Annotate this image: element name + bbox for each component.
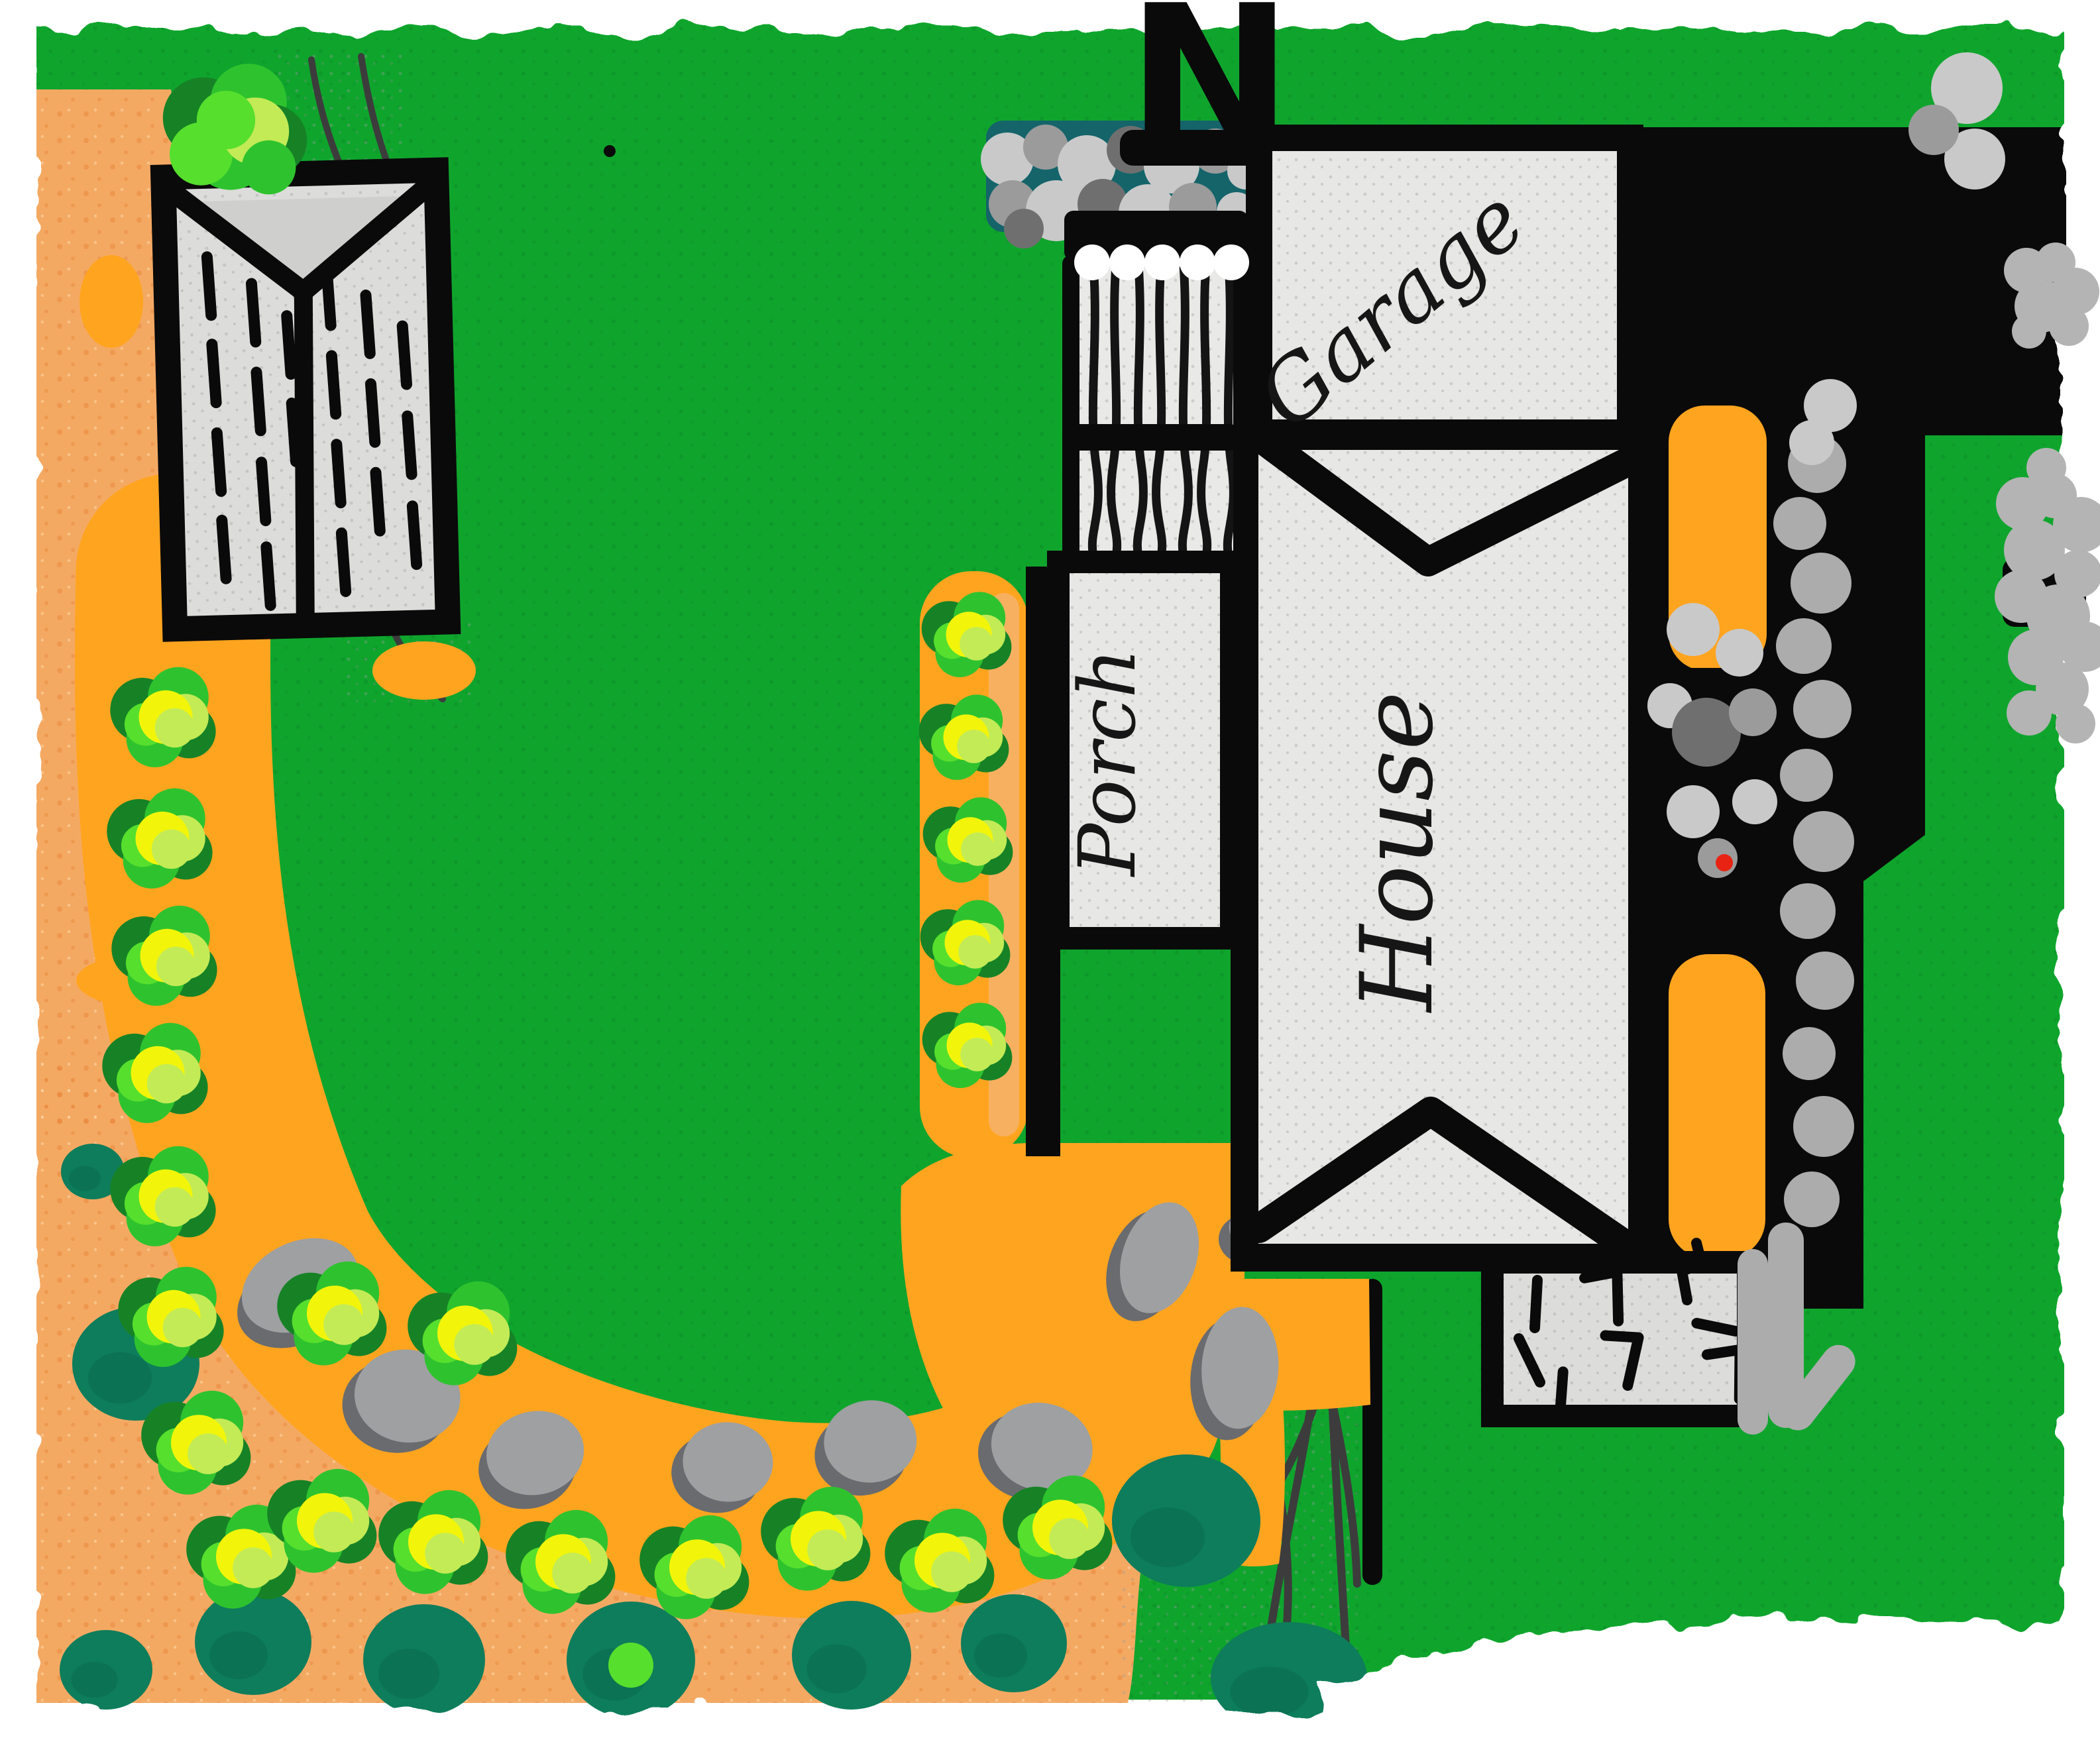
garage: Garage xyxy=(1240,133,1631,448)
gravel-stone xyxy=(1667,785,1720,838)
ink-dot xyxy=(604,145,616,157)
evergreen-shrub xyxy=(363,1604,485,1716)
stepping-stone xyxy=(1780,749,1833,802)
shed-plank-mark xyxy=(222,520,226,578)
shrub-accent-dot xyxy=(608,1643,653,1688)
shed-plank-mark xyxy=(292,403,296,461)
step-arch xyxy=(1213,245,1249,280)
stepping-stone xyxy=(1783,1027,1836,1080)
evergreen-shrub xyxy=(1112,1454,1260,1587)
side-bed-lower xyxy=(1669,954,1765,1259)
shed-plank-mark xyxy=(251,284,255,342)
porch-label: Porch xyxy=(1062,648,1153,877)
step-arch xyxy=(1144,245,1180,280)
patio xyxy=(1492,1243,1748,1420)
gravel-stone xyxy=(1729,688,1777,736)
landscape-plan-canvas: Garage House Porch xyxy=(0,0,2100,1744)
stepping-stone xyxy=(1780,883,1836,939)
evergreen-shrub xyxy=(195,1589,311,1695)
shed-plank-mark xyxy=(217,433,221,491)
stepping-stone xyxy=(1793,1096,1854,1157)
house: House xyxy=(1244,432,1642,1264)
shed-plank-mark xyxy=(266,547,270,605)
step-arch xyxy=(1180,245,1215,280)
shed xyxy=(163,170,448,629)
shed-plank-mark xyxy=(412,506,416,565)
landscape-plan-page: Garage House Porch xyxy=(0,0,2100,1744)
shed-plank-mark xyxy=(376,472,380,531)
evergreen-shrub xyxy=(60,1630,152,1710)
boardwalk xyxy=(1064,211,1249,562)
shed-plank-mark xyxy=(262,463,266,521)
shed-plank-mark xyxy=(287,316,291,374)
step-arch xyxy=(1109,245,1145,280)
stepping-stone xyxy=(1791,553,1851,614)
stepping-stone xyxy=(1773,497,1826,550)
gravel-stone xyxy=(1716,629,1763,677)
evergreen-shrub xyxy=(961,1594,1067,1692)
stepping-stone xyxy=(1793,811,1854,872)
shed-plank-mark xyxy=(370,384,374,442)
gray-bush-circle xyxy=(2012,314,2046,349)
shed-plank-mark xyxy=(212,345,216,403)
shed-plank-mark xyxy=(331,356,335,414)
driveway-stone xyxy=(1908,105,1959,155)
house-label: House xyxy=(1340,691,1455,1013)
shed-plank-mark xyxy=(327,267,331,325)
step-arch xyxy=(1074,245,1110,280)
shed-plank-mark xyxy=(408,416,412,474)
driveway-stone xyxy=(1789,420,1834,465)
gravel-stone xyxy=(1732,779,1777,824)
shed-plank-mark xyxy=(256,372,260,431)
shed-plank-mark xyxy=(337,445,341,503)
stone-slab xyxy=(1738,1249,1768,1435)
shed-plank-mark xyxy=(366,295,370,353)
stepping-stone xyxy=(1776,618,1832,674)
stepping-stone xyxy=(1793,680,1851,738)
gravel-stone xyxy=(1004,209,1044,248)
shed-plank-mark xyxy=(207,257,211,315)
stepping-stone xyxy=(1796,952,1854,1010)
shed-plank-mark xyxy=(341,533,345,592)
evergreen-shrub xyxy=(567,1602,695,1718)
red-accent-dot xyxy=(1716,854,1733,871)
gray-bush-circle xyxy=(2049,306,2089,346)
gray-bush-circle xyxy=(2056,704,2095,743)
gray-bush-circle xyxy=(2007,690,2052,736)
north-indicator: N xyxy=(1127,0,1293,194)
shed-plank-mark xyxy=(402,326,406,384)
evergreen-shrub xyxy=(792,1601,911,1710)
flagstone-mark xyxy=(1535,1280,1537,1328)
gravel-stone xyxy=(1667,603,1720,656)
stepping-stone xyxy=(1784,1172,1840,1227)
step-arches xyxy=(1074,245,1249,280)
